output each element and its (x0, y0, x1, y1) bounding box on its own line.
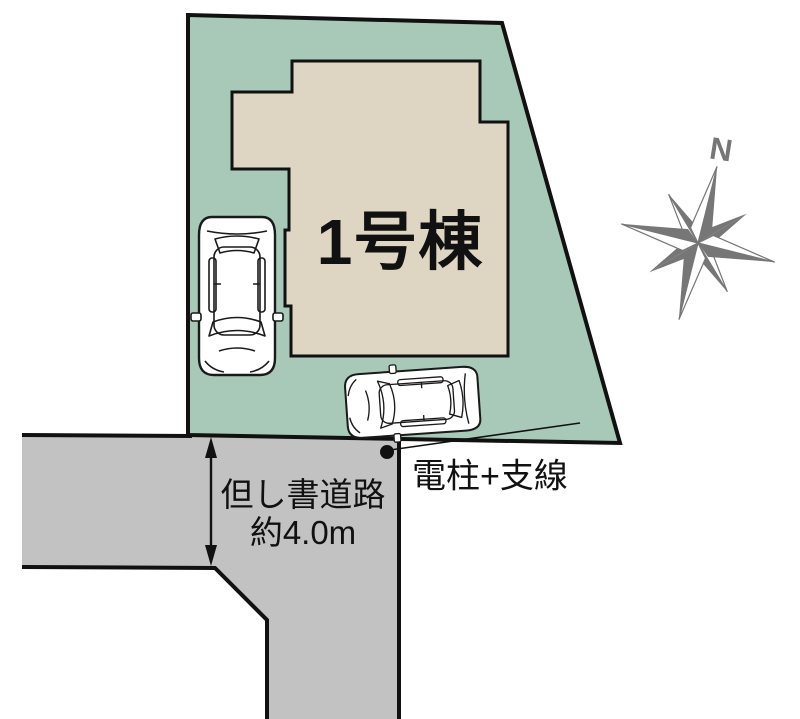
building-label: 1号棟 (317, 191, 484, 283)
road-top-edge (22, 435, 192, 436)
compass-rose-icon (602, 147, 794, 339)
utility-pole-dot (380, 445, 394, 459)
road-note: 但し書道路 約4.0m (221, 476, 386, 552)
car-top-view-vertical (191, 217, 283, 375)
utility-pole-label: 電柱+支線 (412, 449, 568, 498)
road-note-line2: 約4.0m (221, 514, 386, 552)
road-note-line1: 但し書道路 (221, 476, 386, 514)
road-bottom-edge (22, 567, 267, 719)
site-plan-drawing (0, 0, 800, 719)
site-plan-diagram: 1号棟 但し書道路 約4.0m 電柱+支線 N (0, 0, 800, 719)
